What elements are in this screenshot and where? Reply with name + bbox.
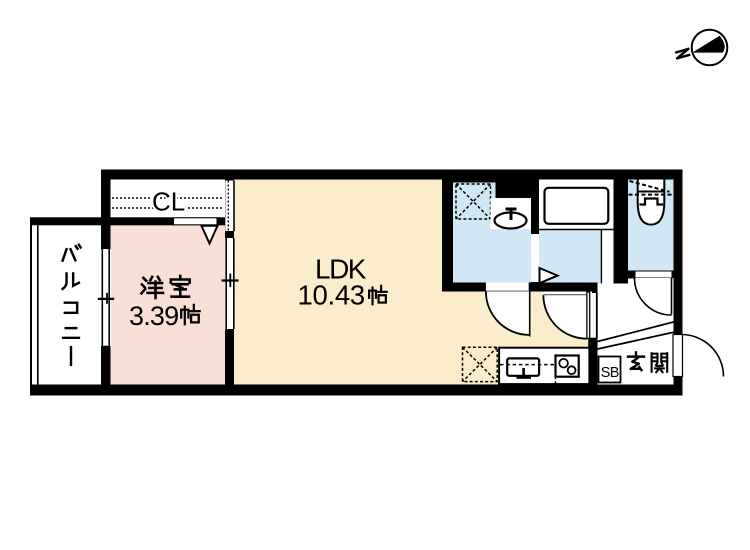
svg-text:CL: CL: [152, 187, 185, 217]
svg-text:3.39: 3.39: [129, 301, 178, 331]
svg-text:10.43: 10.43: [298, 279, 365, 310]
svg-text:SB: SB: [601, 365, 619, 381]
